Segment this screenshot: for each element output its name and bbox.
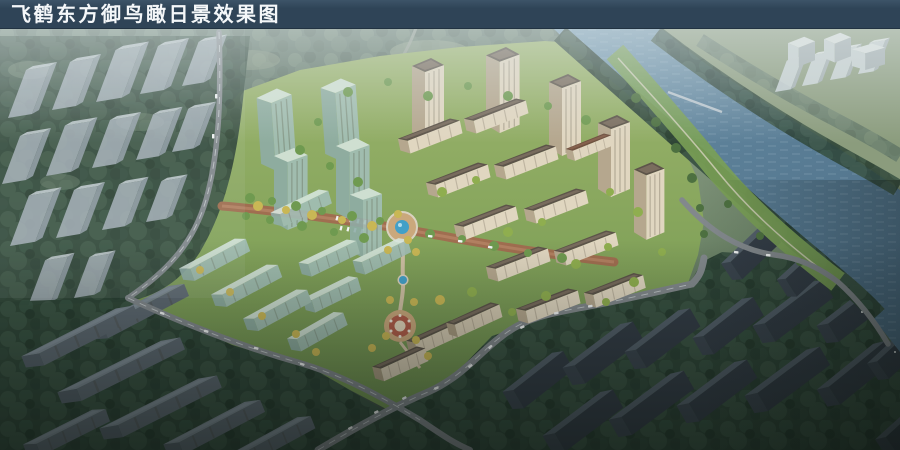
aerial-rendering	[0, 0, 900, 450]
central-plaza	[387, 212, 417, 242]
fountain-pond	[395, 220, 409, 234]
rendering-viewport: 飞鹤东方御鸟瞰日景效果图	[0, 0, 900, 450]
title-bar: 飞鹤东方御鸟瞰日景效果图	[0, 0, 900, 29]
rendering-title: 飞鹤东方御鸟瞰日景效果图	[0, 0, 281, 28]
